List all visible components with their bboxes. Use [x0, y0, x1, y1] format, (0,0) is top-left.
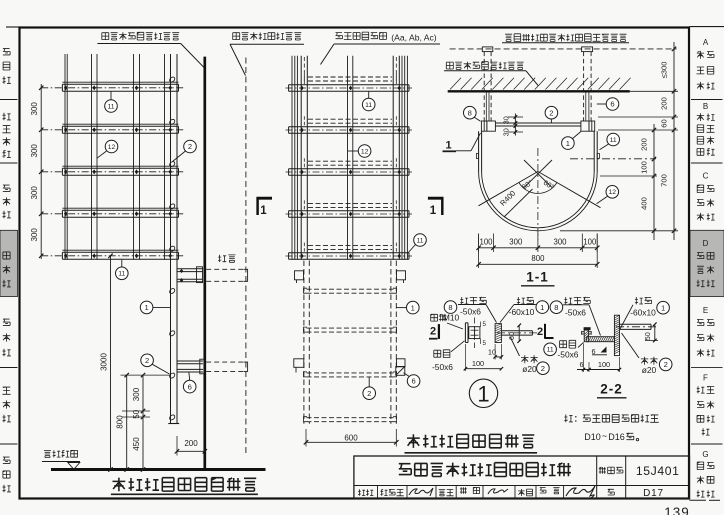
svg-text:8: 8 — [554, 303, 558, 312]
svg-text:600: 600 — [344, 433, 358, 442]
svg-text:8: 8 — [468, 108, 472, 117]
svg-text:~: ~ — [602, 431, 607, 441]
svg-text:1: 1 — [144, 303, 148, 312]
svg-text:1: 1 — [566, 139, 570, 148]
svg-text:1-1: 1-1 — [526, 270, 549, 285]
svg-text:300: 300 — [30, 228, 39, 242]
svg-text:12: 12 — [609, 189, 617, 196]
svg-text:D10: D10 — [584, 432, 601, 442]
svg-text:400: 400 — [640, 197, 649, 210]
svg-text:300: 300 — [509, 237, 523, 246]
svg-text:2: 2 — [664, 360, 668, 369]
svg-text:2: 2 — [537, 326, 543, 338]
svg-text:D16: D16 — [608, 432, 625, 442]
svg-text:1: 1 — [445, 140, 451, 152]
svg-text:ø20: ø20 — [522, 364, 537, 374]
svg-text:6: 6 — [411, 377, 415, 386]
svg-text:200: 200 — [184, 439, 198, 448]
svg-text:D: D — [703, 239, 709, 248]
svg-text:100: 100 — [472, 359, 484, 368]
svg-text:8: 8 — [448, 303, 452, 312]
svg-text:11: 11 — [107, 103, 114, 110]
svg-text:700: 700 — [660, 174, 669, 187]
svg-text:30: 30 — [502, 128, 511, 136]
svg-text:1: 1 — [430, 205, 437, 217]
svg-text:1: 1 — [540, 303, 544, 312]
svg-text:-50x6: -50x6 — [558, 350, 579, 360]
svg-text:6: 6 — [188, 382, 192, 391]
svg-text:30: 30 — [502, 116, 511, 124]
svg-text:100: 100 — [598, 360, 610, 369]
svg-text:2: 2 — [549, 108, 553, 117]
svg-text:5: 5 — [482, 340, 486, 347]
svg-text:6: 6 — [610, 100, 614, 109]
svg-text:100: 100 — [640, 161, 649, 174]
svg-text:100: 100 — [583, 237, 597, 246]
svg-text:11: 11 — [365, 102, 372, 109]
svg-text:800: 800 — [531, 254, 545, 263]
svg-text:50: 50 — [132, 409, 141, 418]
svg-text:15J401: 15J401 — [636, 464, 680, 478]
svg-text:≤300: ≤300 — [660, 62, 669, 79]
svg-text:60: 60 — [507, 332, 516, 340]
svg-text:60: 60 — [660, 119, 669, 127]
svg-text:1: 1 — [661, 303, 665, 312]
svg-text:300: 300 — [30, 186, 39, 200]
svg-text:D17: D17 — [643, 488, 664, 499]
svg-text:200: 200 — [640, 138, 649, 151]
svg-text:200: 200 — [660, 97, 669, 110]
svg-text:G: G — [702, 450, 708, 459]
svg-text:1: 1 — [260, 205, 267, 217]
svg-text:1: 1 — [411, 303, 415, 312]
svg-text:2: 2 — [541, 364, 545, 373]
svg-text:2: 2 — [430, 326, 436, 338]
svg-text:M10: M10 — [443, 313, 460, 323]
svg-text:2: 2 — [188, 142, 192, 151]
svg-text:6: 6 — [580, 360, 584, 369]
svg-text:B: B — [703, 102, 708, 111]
svg-text:12: 12 — [108, 144, 116, 151]
svg-text:12: 12 — [361, 148, 369, 155]
svg-text:E: E — [703, 306, 708, 315]
svg-text:11: 11 — [118, 271, 125, 278]
svg-text:300: 300 — [132, 387, 141, 401]
svg-text:11: 11 — [610, 137, 617, 144]
svg-text:2: 2 — [367, 389, 371, 398]
svg-text:-50x6: -50x6 — [565, 307, 586, 317]
svg-text:-50x6: -50x6 — [460, 306, 481, 316]
svg-text:5: 5 — [482, 321, 486, 328]
svg-text:450: 450 — [132, 437, 141, 451]
svg-text:300: 300 — [30, 102, 39, 116]
svg-text:300: 300 — [553, 237, 567, 246]
svg-text:3000: 3000 — [99, 353, 108, 371]
svg-text:1: 1 — [477, 381, 489, 406]
svg-text:F: F — [703, 374, 708, 383]
svg-text:(Aa, Ab, Ac): (Aa, Ab, Ac) — [391, 33, 437, 43]
svg-text:2: 2 — [145, 356, 149, 365]
svg-text:C: C — [703, 172, 709, 181]
svg-text:50: 50 — [643, 332, 652, 340]
svg-text:139: 139 — [664, 505, 690, 515]
svg-text:A: A — [703, 38, 709, 47]
svg-text:2-2: 2-2 — [600, 382, 623, 397]
svg-text:100: 100 — [479, 237, 493, 246]
svg-text:-60x10: -60x10 — [630, 307, 656, 317]
svg-text:11: 11 — [416, 237, 423, 244]
svg-text:-50x6: -50x6 — [432, 362, 453, 372]
svg-text:11: 11 — [547, 347, 554, 354]
svg-text:ø20: ø20 — [642, 365, 657, 375]
svg-text:300: 300 — [30, 144, 39, 158]
svg-text:-60x10: -60x10 — [509, 307, 535, 317]
